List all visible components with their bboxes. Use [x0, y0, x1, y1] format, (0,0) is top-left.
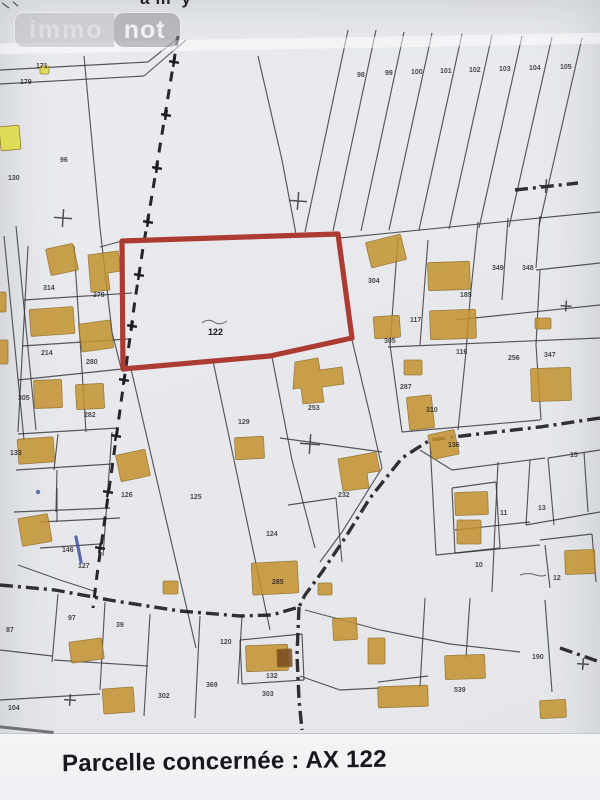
survey-cross	[539, 179, 554, 194]
building	[368, 638, 385, 664]
parcel-boundary-line	[584, 452, 588, 512]
building	[338, 452, 380, 491]
parcel-boundary-line	[240, 634, 302, 640]
parcel-boundary-line	[436, 545, 540, 555]
building	[75, 383, 104, 409]
parcel-boundary-line	[288, 498, 336, 505]
parcel-boundary-line	[545, 545, 550, 588]
parcel-boundary-line	[333, 30, 376, 231]
path-plus-mark	[133, 269, 145, 281]
parcel-number: 120	[220, 639, 232, 646]
building	[45, 243, 78, 275]
building	[277, 649, 293, 668]
parcel-number: 310	[426, 407, 438, 414]
survey-cross	[577, 658, 590, 671]
path-plus-mark	[160, 109, 172, 121]
parcel-boundary-line	[305, 30, 348, 232]
parcel-number: 125	[190, 494, 202, 501]
parcel-number: 179	[20, 79, 32, 86]
scanned-cadastral-map-page: 1711799613098991001011021031041053041853…	[0, 0, 600, 800]
blue-pen-stroke	[76, 537, 81, 562]
parcel-number: 15	[570, 452, 578, 459]
building	[373, 315, 400, 339]
blue-pen-dot	[36, 490, 40, 494]
parcel-boundary-line	[52, 594, 58, 662]
building	[0, 125, 21, 151]
watermark-not-label: not	[114, 13, 180, 47]
building	[18, 514, 52, 547]
parcel-number: 117	[410, 317, 421, 324]
parcel-number: 130	[8, 175, 20, 182]
parcel-boundary-line	[195, 616, 200, 718]
parcel-boundary-line	[100, 241, 122, 247]
building	[332, 617, 357, 640]
parcel-boundary-line	[14, 508, 110, 512]
watermark-immo-label: immo	[15, 13, 114, 47]
building	[404, 360, 422, 375]
cropped-header-text: am y	[140, 0, 260, 8]
parcel-number: 285	[272, 579, 284, 586]
parcel-boundary-line	[340, 212, 600, 238]
building	[0, 292, 6, 312]
parcel-caption: Parcelle concernée : AX 122	[62, 746, 387, 779]
parcel-boundary-line	[455, 305, 600, 320]
parcel-number: 304	[368, 278, 380, 285]
parcel-number: 103	[499, 66, 511, 73]
parcel-boundary-line	[2, 3, 9, 8]
path-plus-mark	[118, 374, 130, 386]
parcel-boundary-line	[18, 428, 118, 434]
path-plus-mark	[126, 320, 138, 332]
parcel-number: 101	[440, 68, 452, 75]
building	[365, 234, 406, 268]
parcel-number: 303	[262, 691, 274, 698]
building	[565, 549, 596, 574]
parcel-number: 104	[8, 705, 20, 712]
building	[34, 380, 63, 409]
parcel-number: 256	[508, 355, 520, 362]
parcel-boundary-line	[548, 458, 554, 525]
building	[535, 318, 551, 329]
parcel-boundary-line	[526, 460, 530, 525]
road-line	[297, 607, 302, 730]
road-line	[560, 648, 600, 662]
parcel-number: 116	[456, 349, 467, 356]
parcel-boundary-line	[0, 650, 52, 656]
parcel-boundary-line	[526, 512, 600, 525]
parcel-number: 13	[538, 505, 546, 512]
parcel-boundary-line	[16, 464, 112, 470]
building	[293, 358, 344, 404]
parcel-number: 124	[266, 531, 278, 538]
parcel-number: 287	[400, 384, 412, 391]
parcel-boundary-line	[302, 634, 304, 680]
parcel-boundary-line	[258, 56, 296, 234]
parcel-number: 214	[41, 350, 53, 357]
parcel-boundary-line	[545, 600, 552, 692]
building	[78, 320, 114, 352]
building	[251, 561, 299, 595]
parcel-number: 105	[560, 64, 572, 71]
parcel-number: 171	[36, 63, 48, 70]
building	[530, 367, 571, 401]
parcel-boundary-line	[240, 640, 242, 684]
parcel-number: 133	[10, 450, 22, 457]
parcel-number: 539	[454, 687, 466, 694]
building	[445, 654, 486, 679]
cropped-text-fragment: y	[181, 0, 196, 8]
parcel-boundary-line	[536, 263, 600, 270]
parcel-boundary-line	[4, 236, 24, 440]
parcel-number: 100	[411, 69, 423, 76]
parcel-boundary-line	[24, 293, 132, 300]
building	[0, 340, 8, 364]
illegible-scribble	[202, 320, 227, 324]
parcel-boundary-line	[242, 680, 304, 684]
parcel-number: 87	[6, 627, 14, 634]
parcel-number: 302	[158, 693, 170, 700]
survey-cross	[299, 433, 320, 454]
illegible-scribble	[520, 574, 546, 577]
building	[17, 437, 55, 464]
building	[455, 491, 489, 515]
parcel-boundary-line	[18, 369, 122, 380]
parcel-boundary-line	[0, 62, 148, 70]
parcel-number: 305	[18, 395, 30, 402]
parcel-number: 127	[78, 563, 90, 570]
parcel-boundary-line	[300, 676, 380, 690]
buildings-layer	[0, 66, 595, 719]
building	[102, 687, 135, 714]
building	[116, 449, 151, 482]
parcel-boundary-line	[452, 482, 496, 488]
survey-cross-marks	[53, 179, 589, 707]
highlighted-parcel-outline	[122, 234, 352, 369]
parcel-boundary-line	[361, 32, 404, 231]
path-plus-mark	[168, 56, 180, 68]
parcel-number: 282	[84, 412, 96, 419]
building	[69, 638, 105, 663]
parcel-number: 99	[385, 70, 393, 77]
building	[234, 436, 264, 459]
parcel-number: 97	[68, 615, 76, 622]
parcel-number: 132	[266, 673, 278, 680]
building	[540, 699, 567, 718]
cropped-text-fragment: am	[140, 0, 177, 8]
survey-cross	[560, 300, 572, 312]
parcel-boundary-line	[458, 352, 466, 430]
parcel-boundary-line	[280, 438, 382, 452]
cadastral-map: 1711799613098991001011021031041053041853…	[0, 0, 600, 733]
parcel-number: 369	[206, 682, 218, 689]
parcel-number: 348	[522, 265, 534, 272]
path-plus-mark	[142, 216, 154, 228]
parcel-boundary-line	[452, 458, 545, 470]
parcel-number: 347	[544, 352, 556, 359]
parcel-number: 136	[448, 442, 460, 449]
parcel-number: 280	[86, 359, 98, 366]
parcel-boundary-line	[144, 614, 150, 716]
parcel-number: 10	[475, 562, 483, 569]
parcel-boundary-line	[420, 598, 425, 688]
parcel-number: 185	[460, 292, 472, 299]
parcel-number: 232	[338, 492, 350, 499]
parcel-number: 126	[121, 492, 133, 499]
parcel-boundary-line	[492, 462, 498, 592]
highlighted-parcel-number: 122	[208, 327, 223, 337]
caption-band: Parcelle concernée : AX 122	[0, 733, 600, 800]
building	[430, 309, 477, 340]
path-plus-mark	[151, 162, 163, 174]
parcel-boundary-line	[0, 694, 100, 700]
path-plus-mark	[102, 486, 114, 498]
parcel-boundary-line	[540, 534, 592, 540]
building	[29, 306, 75, 336]
parcel-number: 39	[116, 622, 124, 629]
parcel-number: 11	[500, 510, 508, 517]
building	[318, 583, 332, 595]
parcel-boundary-line	[54, 434, 58, 470]
parcel-number: 96	[60, 157, 68, 164]
parcel-boundary-line	[420, 240, 428, 345]
immonot-watermark: immo not	[14, 12, 181, 48]
building	[428, 261, 471, 290]
building	[378, 685, 429, 708]
building	[163, 581, 178, 594]
parcel-number: 314	[43, 285, 55, 292]
building	[457, 520, 481, 544]
survey-cross	[53, 208, 72, 227]
parcel-boundary-line	[40, 518, 120, 522]
parcel-boundary-line	[18, 246, 28, 432]
parcel-number: 305	[384, 338, 396, 345]
parcel-boundary-line	[502, 218, 508, 300]
parcel-number: 129	[238, 419, 250, 426]
parcel-number: 279	[93, 292, 105, 299]
parcel-boundary-line	[466, 598, 470, 658]
building	[88, 251, 121, 292]
parcel-number: 146	[62, 547, 74, 554]
parcel-number: 349	[492, 265, 504, 272]
parcel-boundary-line	[13, 2, 18, 6]
parcel-number: 98	[357, 72, 365, 79]
parcel-number: 12	[553, 575, 561, 582]
parcel-number: 102	[469, 67, 481, 74]
parcel-number: 253	[308, 405, 320, 412]
parcel-number: 190	[532, 654, 544, 661]
parcel-number: 104	[529, 65, 541, 72]
